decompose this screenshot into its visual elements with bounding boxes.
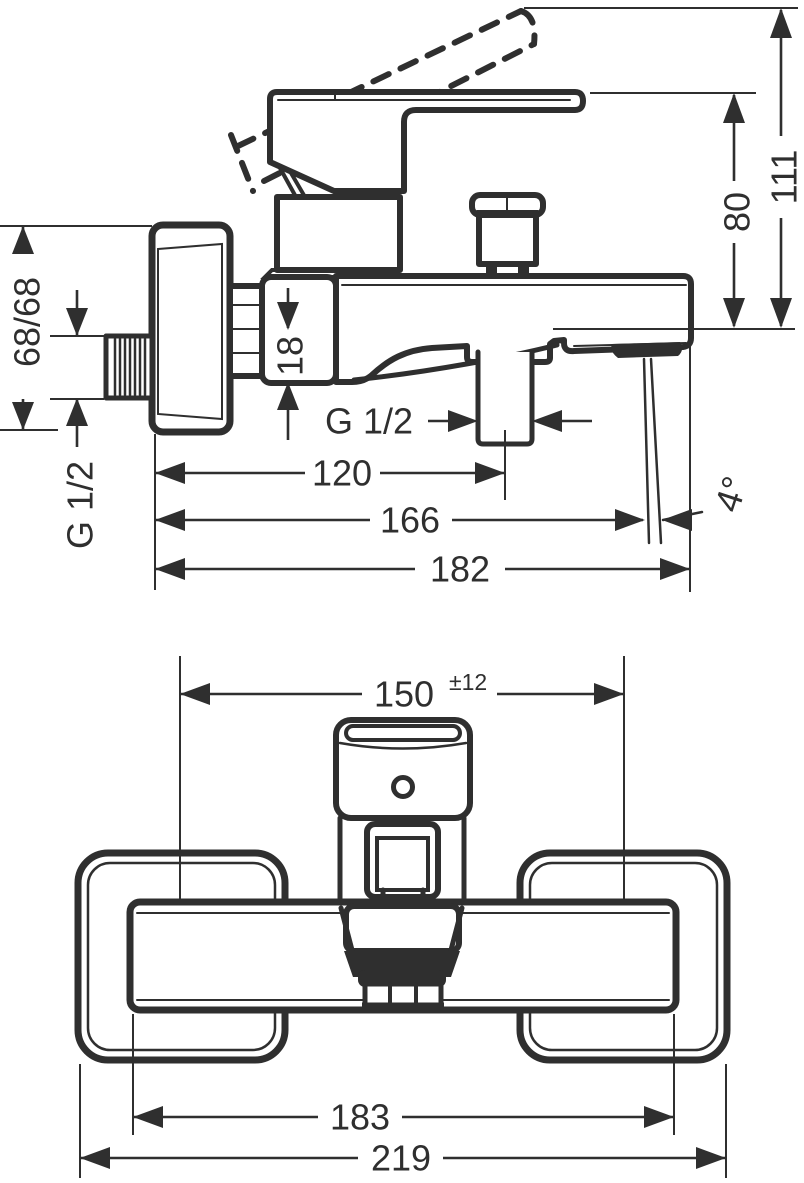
depth-outlet-label: 120 [312,453,372,494]
handle-screw-hole [394,778,413,797]
inlet-thread-label: G 1/2 [60,461,101,549]
escutcheon-side [152,225,230,432]
stream-angle-lines [644,359,702,543]
diverter-knob [472,195,543,277]
inlet-thread-pipe [106,336,152,398]
side-view: 68/68 G 1/2 18 G 1/2 120 [0,8,804,592]
depth-stream-label: 166 [380,500,440,541]
front-view: 150 ±12 183 219 [78,656,727,1179]
depth-total-label: 182 [430,549,490,590]
connection-centers-label: 150 [374,674,434,715]
dim-depth-166: 166 [155,500,692,541]
plate-size-label: 68/68 [7,277,48,367]
spout-drop-label: 18 [270,336,311,376]
lever-handle [270,92,583,191]
technical-drawing: 68/68 G 1/2 18 G 1/2 120 [0,0,804,1183]
handle-base-block [277,197,400,270]
height-total-label: 111 [764,150,804,205]
stream-angle-label: 4° [706,471,756,516]
body-width-label: 183 [330,1097,390,1138]
overall-width-label: 219 [371,1138,431,1179]
dim-depth-120: 120 [155,453,505,494]
dim-overall-219: 219 [80,1064,726,1179]
handle-front [336,720,470,900]
union-nut [230,286,263,376]
dim-centers-150: 150 ±12 [180,669,624,715]
connection-tolerance-label: ±12 [449,669,487,695]
drawing-page: 68/68 G 1/2 18 G 1/2 120 [0,0,804,1183]
dim-outlet-thread: G 1/2 [325,401,592,442]
dim-inlet-thread: G 1/2 [50,290,104,549]
height-handle-label: 80 [717,192,758,232]
outlet-thread-label: G 1/2 [325,401,413,442]
dim-depth-182: 182 [155,549,690,590]
aerator-lip [611,342,682,358]
